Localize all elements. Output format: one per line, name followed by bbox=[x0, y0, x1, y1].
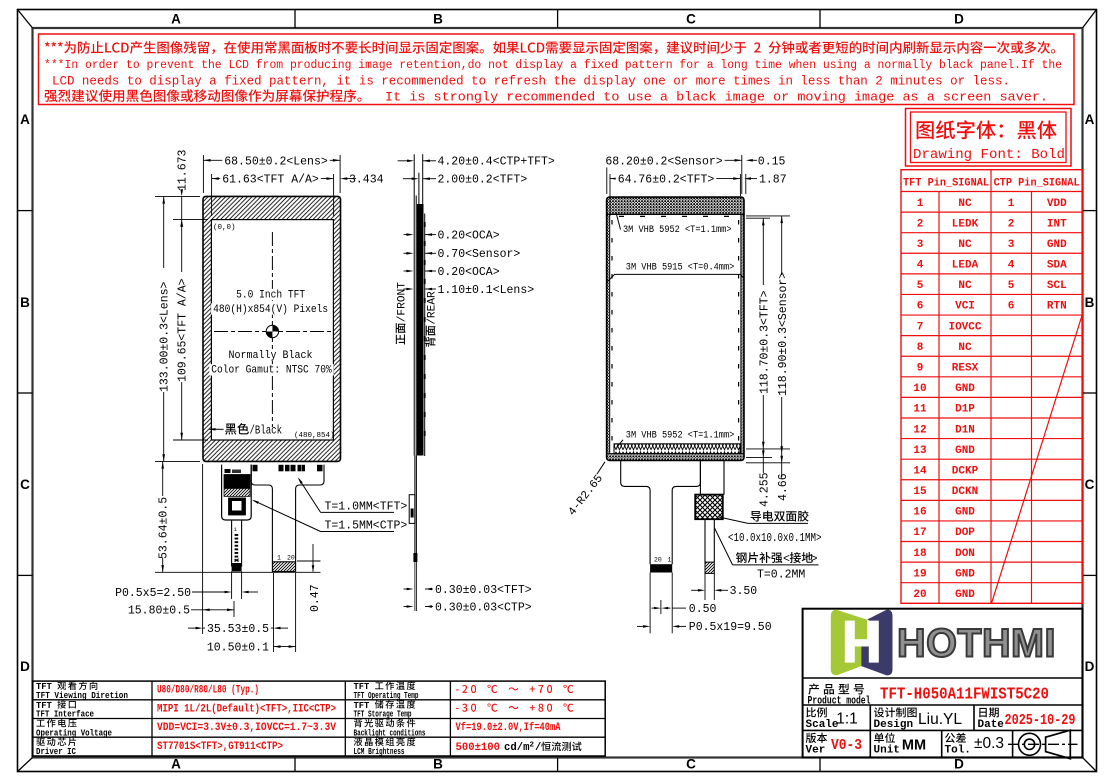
svg-text:A: A bbox=[171, 12, 181, 27]
svg-text:NC: NC bbox=[958, 280, 972, 292]
svg-text:4.20±0.4<CTP+TFT>: 4.20±0.4<CTP+TFT> bbox=[438, 156, 555, 169]
svg-text:1.10±0.1<Lens>: 1.10±0.1<Lens> bbox=[438, 284, 535, 297]
svg-text:D: D bbox=[954, 12, 964, 27]
svg-text:V0-3: V0-3 bbox=[831, 737, 862, 754]
svg-text:A: A bbox=[1085, 112, 1095, 127]
svg-text:15.80±0.5: 15.80±0.5 bbox=[128, 604, 190, 617]
svg-text:Liu.YL: Liu.YL bbox=[918, 711, 962, 728]
svg-text:DCKP: DCKP bbox=[952, 465, 979, 477]
svg-text:GND: GND bbox=[955, 383, 975, 395]
svg-text:3M VHB 5952 <T=1.1mm>: 3M VHB 5952 <T=1.1mm> bbox=[623, 224, 732, 236]
svg-text:3M VHB 5915 <T=0.4mm>: 3M VHB 5915 <T=0.4mm> bbox=[626, 261, 735, 273]
svg-text:HOTHMI: HOTHMI bbox=[897, 622, 1056, 666]
svg-text:±0.3: ±0.3 bbox=[974, 735, 1004, 752]
svg-text:D: D bbox=[954, 757, 964, 772]
svg-text:4.66: 4.66 bbox=[777, 473, 790, 501]
svg-text:1: 1 bbox=[917, 198, 924, 210]
svg-text:B: B bbox=[433, 757, 443, 772]
svg-text:GND: GND bbox=[955, 568, 975, 580]
svg-text:18: 18 bbox=[913, 548, 927, 560]
svg-text:D1P: D1P bbox=[955, 404, 975, 416]
svg-text:INT: INT bbox=[1047, 218, 1067, 230]
svg-text:DOP: DOP bbox=[955, 527, 975, 539]
svg-text:3M VHB 5952 <T=1.1mm>: 3M VHB 5952 <T=1.1mm> bbox=[626, 429, 735, 441]
svg-text:TFT Interface: TFT Interface bbox=[36, 710, 94, 720]
svg-text:Drawing Font: Bold: Drawing Font: Bold bbox=[913, 147, 1065, 163]
svg-text:0.15: 0.15 bbox=[758, 155, 786, 168]
svg-text:68.50±0.2<Lens>: 68.50±0.2<Lens> bbox=[224, 155, 328, 168]
svg-text:1: 1 bbox=[1008, 198, 1015, 210]
svg-text:GND: GND bbox=[955, 589, 975, 601]
svg-text:TFT Viewing Diretion: TFT Viewing Diretion bbox=[36, 691, 128, 701]
svg-text:0.70<Sensor>: 0.70<Sensor> bbox=[438, 248, 521, 261]
svg-text:1: 1 bbox=[277, 555, 281, 562]
svg-text:RTN: RTN bbox=[1047, 301, 1067, 313]
svg-text:D: D bbox=[1085, 659, 1095, 674]
svg-text:2025-10-29: 2025-10-29 bbox=[1005, 712, 1076, 729]
svg-text:Unit: Unit bbox=[874, 745, 900, 757]
svg-text:NC: NC bbox=[958, 342, 972, 354]
svg-text:CTP Pin_SIGNAL: CTP Pin_SIGNAL bbox=[994, 178, 1080, 190]
svg-text:D1N: D1N bbox=[955, 424, 975, 436]
svg-text:T=0.2MM: T=0.2MM bbox=[757, 569, 805, 582]
svg-text:10: 10 bbox=[913, 383, 926, 395]
svg-text:B: B bbox=[20, 295, 30, 310]
svg-text:C: C bbox=[20, 477, 30, 492]
svg-text:10.50±0.1: 10.50±0.1 bbox=[207, 641, 269, 654]
svg-text:118.90±0.3<Sensor>: 118.90±0.3<Sensor> bbox=[777, 272, 790, 396]
svg-text:>: > bbox=[811, 553, 818, 566]
svg-text:6: 6 bbox=[917, 301, 924, 313]
svg-text:VDD: VDD bbox=[1047, 198, 1067, 210]
svg-text:2: 2 bbox=[1008, 218, 1015, 230]
svg-text:14: 14 bbox=[913, 465, 927, 477]
svg-text:3: 3 bbox=[1008, 239, 1015, 251]
svg-text:GND: GND bbox=[1047, 239, 1067, 251]
svg-text:0.47: 0.47 bbox=[309, 584, 322, 612]
svg-text:MIPI 1L/2L(Default)<TFT>,IIC<C: MIPI 1L/2L(Default)<TFT>,IIC<CTP> bbox=[157, 703, 336, 715]
svg-text:Tol.: Tol. bbox=[945, 745, 971, 757]
svg-text:20: 20 bbox=[913, 589, 926, 601]
svg-text:0.20<OCA>: 0.20<OCA> bbox=[438, 266, 500, 279]
svg-text:NC: NC bbox=[958, 198, 972, 210]
svg-text:0.50: 0.50 bbox=[689, 603, 717, 616]
svg-text:***In order to prevent the LCD: ***In order to prevent the LCD from prod… bbox=[44, 59, 1062, 72]
svg-text:T=1.0MM<TFT>: T=1.0MM<TFT> bbox=[325, 501, 408, 514]
svg-text:11.673: 11.673 bbox=[177, 149, 190, 191]
svg-text:0.30±0.03<TFT>: 0.30±0.03<TFT> bbox=[435, 584, 532, 597]
svg-text:17: 17 bbox=[913, 527, 926, 539]
svg-text:133.00±0.3<Lens>: 133.00±0.3<Lens> bbox=[159, 281, 172, 392]
svg-text:4: 4 bbox=[917, 260, 924, 272]
svg-text:DON: DON bbox=[955, 548, 975, 560]
svg-text:4.255: 4.255 bbox=[759, 472, 772, 507]
svg-text:61.63<TFT A/A>: 61.63<TFT A/A> bbox=[222, 174, 319, 187]
svg-text:4: 4 bbox=[1008, 260, 1015, 272]
svg-text:MM: MM bbox=[902, 738, 926, 754]
svg-text:<: < bbox=[783, 553, 790, 566]
svg-text:DCKN: DCKN bbox=[952, 486, 978, 498]
svg-text:5: 5 bbox=[1008, 280, 1015, 292]
svg-text:LEDA: LEDA bbox=[952, 260, 979, 272]
svg-text:6: 6 bbox=[1008, 301, 1015, 313]
svg-text:118.70±0.3<TFT>: 118.70±0.3<TFT> bbox=[759, 290, 772, 394]
svg-text:VCI: VCI bbox=[955, 301, 975, 313]
svg-text:500±100: 500±100 bbox=[456, 742, 501, 754]
svg-text:It is strongly recommended to: It is strongly recommended to use a blac… bbox=[385, 90, 1048, 105]
svg-text:TFT-H050A11FWIST5C20: TFT-H050A11FWIST5C20 bbox=[880, 686, 1049, 705]
svg-text:Scale: Scale bbox=[806, 719, 839, 731]
svg-text:1:1: 1:1 bbox=[836, 711, 858, 728]
svg-text:TFT Operating Temp: TFT Operating Temp bbox=[354, 691, 419, 701]
svg-text:2: 2 bbox=[530, 742, 535, 750]
svg-text:8: 8 bbox=[917, 342, 924, 354]
svg-text:Ver: Ver bbox=[806, 745, 826, 757]
svg-text:ST7701S<TFT>,GT911<CTP>: ST7701S<TFT>,GT911<CTP> bbox=[157, 741, 283, 753]
svg-text:2.00±0.2<TFT>: 2.00±0.2<TFT> bbox=[438, 174, 528, 187]
svg-text:12: 12 bbox=[913, 424, 926, 436]
svg-text:Driver IC: Driver IC bbox=[36, 747, 77, 757]
svg-text:B: B bbox=[433, 12, 443, 27]
svg-text:A: A bbox=[171, 757, 181, 772]
svg-text:C: C bbox=[686, 12, 696, 27]
svg-text:P0.5x19=9.50: P0.5x19=9.50 bbox=[689, 621, 772, 634]
svg-text:11: 11 bbox=[913, 404, 927, 416]
svg-text:TFT Storage Temp: TFT Storage Temp bbox=[354, 710, 412, 720]
svg-text:Operating Voltage: Operating Voltage bbox=[36, 728, 112, 738]
svg-text:7: 7 bbox=[917, 321, 924, 333]
svg-text:20: 20 bbox=[287, 555, 295, 562]
svg-text:3: 3 bbox=[917, 239, 924, 251]
svg-text:U80/D80/R80/L80 (Typ.): U80/D80/R80/L80 (Typ.) bbox=[157, 685, 259, 697]
svg-text:68.20±0.2<Sensor>: 68.20±0.2<Sensor> bbox=[605, 155, 722, 168]
svg-text:(0,0): (0,0) bbox=[213, 224, 236, 232]
svg-text:GND: GND bbox=[955, 445, 975, 457]
svg-text:Color Gamut: NTSC 70%: Color Gamut: NTSC 70% bbox=[211, 365, 332, 377]
svg-text:A: A bbox=[20, 112, 30, 127]
svg-text:3.50: 3.50 bbox=[730, 585, 758, 598]
svg-text:1.87: 1.87 bbox=[759, 174, 787, 187]
svg-text:IOVCC: IOVCC bbox=[948, 321, 981, 333]
svg-text:T=1.5MM<CTP>: T=1.5MM<CTP> bbox=[325, 520, 408, 533]
svg-text:35.53±0.5: 35.53±0.5 bbox=[207, 623, 269, 636]
svg-text:C: C bbox=[686, 757, 696, 772]
svg-text:53.64±0.5: 53.64±0.5 bbox=[158, 497, 171, 559]
svg-text:Vf=19.0±2.0V,If=40mA: Vf=19.0±2.0V,If=40mA bbox=[456, 722, 562, 734]
svg-text:480(H)x854(V) Pixels: 480(H)x854(V) Pixels bbox=[213, 304, 328, 316]
svg-text:LEDK: LEDK bbox=[952, 218, 979, 230]
svg-text:Backlight conditions: Backlight conditions bbox=[354, 728, 426, 738]
svg-text:1: 1 bbox=[668, 557, 672, 564]
svg-text:9: 9 bbox=[917, 363, 924, 375]
svg-text:cd/m: cd/m bbox=[504, 742, 529, 754]
svg-text:16: 16 bbox=[913, 507, 926, 519]
svg-text:5: 5 bbox=[917, 280, 924, 292]
svg-text:Date: Date bbox=[978, 719, 1005, 731]
svg-text:3.434: 3.434 bbox=[349, 174, 384, 187]
svg-text:/: / bbox=[535, 742, 541, 754]
svg-text:SDA: SDA bbox=[1047, 260, 1067, 272]
svg-text:D: D bbox=[20, 659, 30, 674]
svg-text:LCM Brightness: LCM Brightness bbox=[354, 747, 405, 757]
svg-text:P0.5x5=2.50: P0.5x5=2.50 bbox=[115, 587, 191, 600]
svg-text:Design: Design bbox=[874, 719, 914, 731]
svg-text:19: 19 bbox=[913, 568, 926, 580]
svg-text:LCD needs to display a fixed p: LCD needs to display a fixed pattern, it… bbox=[52, 75, 1010, 89]
svg-text:<10.0x10.0x0.1MM>: <10.0x10.0x0.1MM> bbox=[728, 532, 822, 545]
svg-text:C: C bbox=[1085, 477, 1095, 492]
svg-text:VDD=VCI=3.3V±0.3,IOVCC=1.7~3.3: VDD=VCI=3.3V±0.3,IOVCC=1.7~3.3V bbox=[157, 722, 337, 734]
svg-text:13: 13 bbox=[913, 445, 927, 457]
svg-text:15: 15 bbox=[913, 486, 927, 498]
svg-text:Normally Black: Normally Black bbox=[229, 350, 313, 362]
svg-text:B: B bbox=[1085, 295, 1095, 310]
svg-text:5.0 Inch TFT: 5.0 Inch TFT bbox=[236, 289, 305, 301]
svg-text:2: 2 bbox=[917, 218, 924, 230]
svg-text:NC: NC bbox=[958, 239, 972, 251]
svg-text:20: 20 bbox=[654, 557, 662, 564]
svg-text:SCL: SCL bbox=[1047, 280, 1067, 292]
svg-text:Product model: Product model bbox=[808, 696, 871, 708]
svg-text:(480,854): (480,854) bbox=[294, 432, 335, 440]
svg-text:109.65<TFT A/A>: 109.65<TFT A/A> bbox=[177, 278, 190, 382]
svg-text:0.30±0.03<CTP>: 0.30±0.03<CTP> bbox=[435, 601, 532, 614]
svg-text:RESX: RESX bbox=[952, 363, 979, 375]
svg-text:/Black: /Black bbox=[250, 424, 283, 438]
svg-text:TFT Pin_SIGNAL: TFT Pin_SIGNAL bbox=[903, 178, 989, 190]
svg-text:0.20<OCA>: 0.20<OCA> bbox=[438, 230, 500, 243]
svg-text:64.76±0.2<TFT>: 64.76±0.2<TFT> bbox=[618, 174, 715, 187]
svg-text:GND: GND bbox=[955, 507, 975, 519]
